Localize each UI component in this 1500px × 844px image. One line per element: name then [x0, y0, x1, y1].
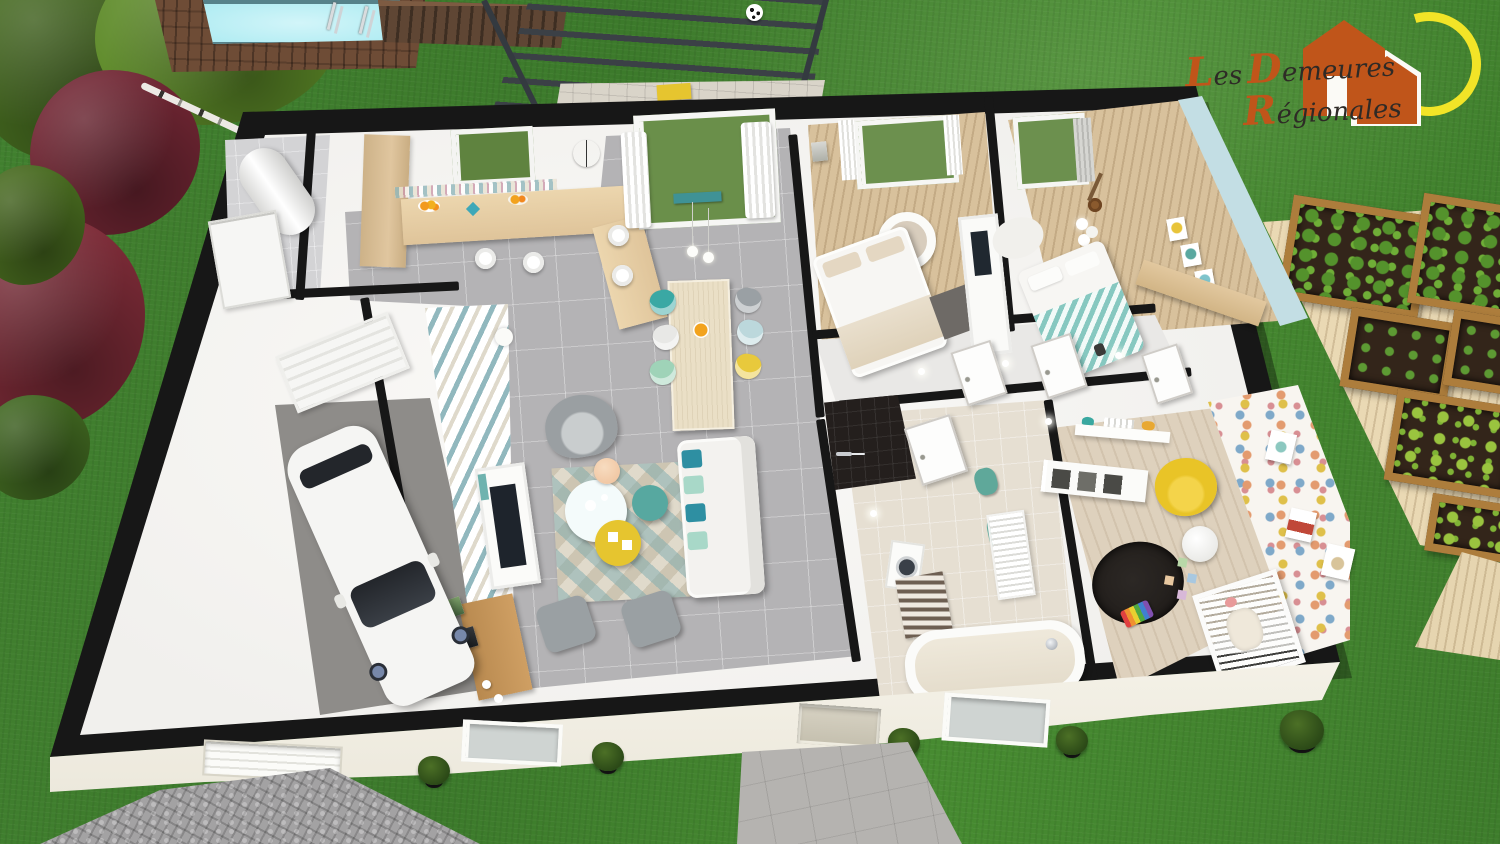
shelf-toy-teal — [1082, 416, 1095, 425]
tabletop-dishes — [585, 500, 596, 511]
entrance-door-recess — [797, 703, 882, 749]
boxwood-shrub — [1056, 726, 1088, 755]
teal-garden-bench — [673, 191, 721, 203]
table-lamp — [495, 328, 513, 346]
fruit-bowl — [508, 194, 528, 205]
sofa-white — [677, 435, 766, 598]
coffee-table-yellow — [595, 520, 641, 566]
pendant-light-icon — [687, 246, 698, 257]
seedlings — [1349, 316, 1450, 394]
floor-vases — [482, 680, 491, 689]
polka-wall-frame — [1321, 543, 1355, 580]
crib-toy — [1224, 596, 1239, 609]
shelf-toy-yellow — [1141, 421, 1155, 431]
fruit-bowl — [418, 200, 440, 212]
ceiling-spotlight — [1045, 418, 1052, 425]
wall-frame — [811, 141, 828, 161]
boxwood-shrub — [592, 742, 624, 771]
toy-blocks — [1177, 557, 1187, 567]
ceiling-spotlight — [1115, 352, 1122, 359]
swimming-pool — [195, 0, 405, 46]
car-windshield — [348, 558, 439, 631]
ceiling-spotlight — [918, 368, 925, 375]
pendant-light-icon — [703, 252, 714, 263]
kitchen-window — [451, 126, 536, 186]
soccer-ball-icon — [746, 4, 763, 21]
shelf-books — [1104, 417, 1135, 429]
seedlings — [1452, 319, 1500, 388]
curtain-left — [621, 131, 652, 228]
crib-mattress — [1222, 604, 1267, 654]
tv-screen — [489, 484, 526, 569]
boxwood-shrub — [418, 756, 450, 785]
pendant-cord — [708, 208, 709, 254]
facade-window — [461, 719, 563, 766]
pendant-lamp-peach — [594, 458, 620, 484]
bed-pillows — [821, 251, 862, 279]
round-floor-lamp — [1182, 526, 1218, 562]
gallery-frame-teal — [1180, 243, 1202, 268]
wall-clock-icon — [573, 140, 600, 167]
shower-head — [836, 452, 852, 456]
sofa-cushions-teal — [681, 449, 702, 468]
greens — [1433, 502, 1500, 556]
tabletop-boxes — [608, 532, 618, 542]
pendant-cord — [692, 202, 693, 248]
planter-herbs — [1407, 193, 1500, 318]
bar-stool — [608, 225, 629, 246]
tall-plants — [1416, 202, 1500, 309]
fruit-plate — [693, 322, 709, 338]
coffee-table-teal — [632, 485, 668, 521]
lettuce — [1393, 398, 1500, 491]
floorplan-render: Les Demeures Régionales — [0, 0, 1500, 844]
deck-strip-bottom-right — [1415, 552, 1500, 660]
car-rear-window — [297, 442, 375, 491]
bar-stool — [523, 252, 544, 273]
potted-shrub-corner — [1280, 710, 1324, 750]
console-teal-accent — [478, 474, 490, 501]
cascade-chandelier — [1076, 218, 1088, 230]
gallery-frame-yellow — [1166, 217, 1188, 242]
ceiling-spotlight — [870, 510, 877, 517]
curtain-right — [741, 121, 776, 218]
bed2-pillows — [1027, 265, 1064, 292]
wall-tv — [970, 230, 992, 276]
bar-stool — [475, 248, 496, 269]
dining-table — [667, 279, 734, 431]
ceiling-spotlight — [1002, 360, 1009, 367]
facade-window — [941, 692, 1050, 747]
bar-stool — [612, 265, 633, 286]
